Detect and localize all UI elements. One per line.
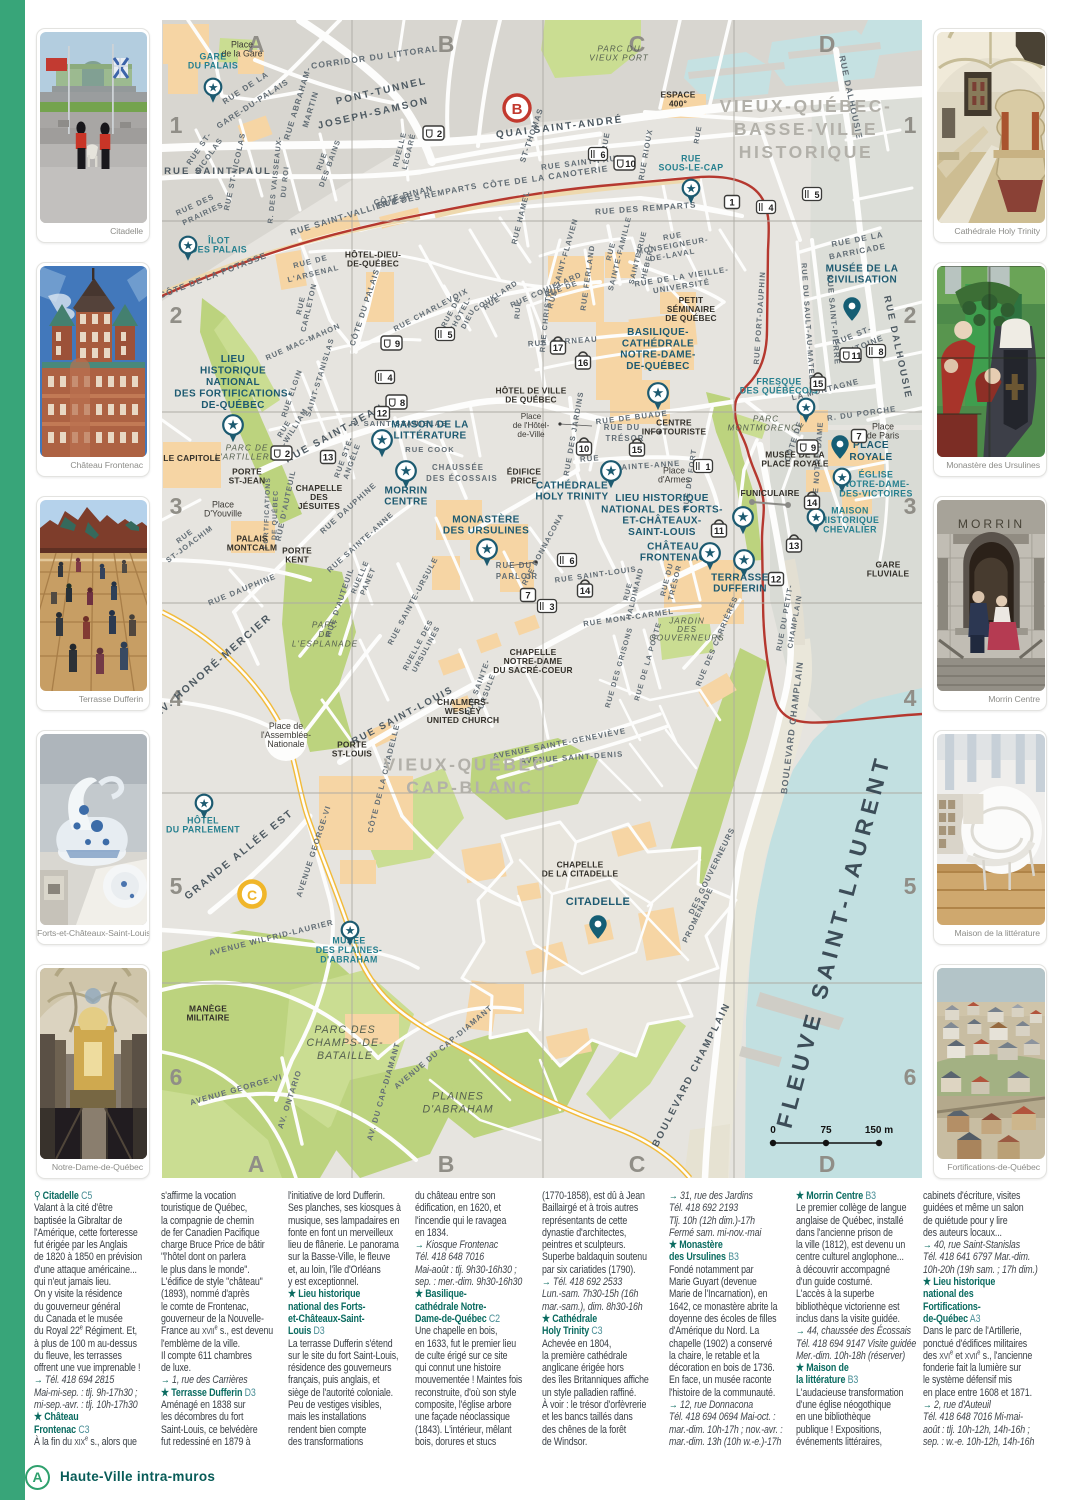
svg-text:DES URSULINES: DES URSULINES <box>443 526 529 537</box>
svg-text:KENT: KENT <box>285 555 309 565</box>
svg-text:MUSÉE DE LA: MUSÉE DE LA <box>826 262 899 275</box>
svg-text:MAISON DE LA: MAISON DE LA <box>391 419 469 430</box>
svg-text:9: 9 <box>811 443 816 454</box>
svg-text:5: 5 <box>814 190 819 200</box>
svg-text:D'Youville: D'Youville <box>204 509 242 519</box>
svg-text:DE: DE <box>318 630 331 639</box>
svg-text:CENTRE: CENTRE <box>384 497 428 508</box>
svg-text:★: ★ <box>208 81 219 94</box>
svg-text:1: 1 <box>170 112 183 138</box>
svg-text:UNITED CHURCH: UNITED CHURCH <box>427 715 499 725</box>
svg-text:15: 15 <box>632 445 643 456</box>
svg-text:NATIONAL: NATIONAL <box>206 377 260 388</box>
svg-text:RUE SAINT-PAUL: RUE SAINT-PAUL <box>164 166 272 177</box>
svg-text:PARC DU: PARC DU <box>597 45 640 54</box>
svg-text:★: ★ <box>811 511 822 524</box>
svg-text:★: ★ <box>652 384 664 400</box>
svg-text:PARC: PARC <box>753 415 779 424</box>
svg-text:ST-JEAN: ST-JEAN <box>229 476 266 486</box>
svg-text:★: ★ <box>737 508 749 524</box>
svg-text:BASILIQUE-: BASILIQUE- <box>627 327 689 338</box>
svg-text:6: 6 <box>904 1064 917 1090</box>
svg-text:LITTÉRATURE: LITTÉRATURE <box>393 429 466 442</box>
svg-text:17: 17 <box>553 343 564 354</box>
svg-text:DE LA CITADELLE: DE LA CITADELLE <box>542 869 619 879</box>
svg-text:CITADELLE: CITADELLE <box>566 896 631 908</box>
svg-text:2: 2 <box>285 449 290 460</box>
svg-text:FUNICULAIRE: FUNICULAIRE <box>741 488 800 498</box>
svg-text:RUE DU: RUE DU <box>604 423 641 432</box>
svg-text:ROYALE: ROYALE <box>849 452 892 463</box>
svg-text:CAP-BLANC: CAP-BLANC <box>406 778 533 798</box>
svg-text:4: 4 <box>387 373 392 383</box>
svg-text:★: ★ <box>801 401 812 414</box>
svg-text:DES PALAIS: DES PALAIS <box>191 245 247 255</box>
svg-text:PLAINES: PLAINES <box>432 1091 484 1103</box>
svg-text:MONASTÈRE: MONASTÈRE <box>452 512 520 525</box>
svg-text:PARC DES: PARC DES <box>314 1024 375 1036</box>
svg-text:VIEUX-QUÉBEC-: VIEUX-QUÉBEC- <box>720 95 893 116</box>
svg-text:DE-QUÉBEC: DE-QUÉBEC <box>201 398 265 411</box>
svg-text:D'ABRAHAM: D'ABRAHAM <box>320 954 378 964</box>
svg-text:16: 16 <box>578 358 589 369</box>
svg-text:HISTORIQUE: HISTORIQUE <box>200 366 266 377</box>
svg-text:Nationale: Nationale <box>267 739 304 749</box>
svg-text:★: ★ <box>704 544 716 560</box>
svg-text:MORRIN: MORRIN <box>958 517 1025 531</box>
svg-text:de Paris: de Paris <box>867 431 900 441</box>
svg-text:15: 15 <box>813 379 824 390</box>
svg-text:400°: 400° <box>669 99 687 109</box>
svg-text:TERRASSE: TERRASSE <box>711 572 769 583</box>
svg-text:C: C <box>247 887 257 903</box>
svg-text:9: 9 <box>395 339 400 350</box>
svg-text:3: 3 <box>170 493 183 519</box>
svg-text:5: 5 <box>904 873 917 899</box>
svg-text:★: ★ <box>183 239 194 252</box>
svg-text:★: ★ <box>227 416 239 432</box>
svg-text:CATHÉDRALE: CATHÉDRALE <box>622 336 694 349</box>
svg-text:MONTMORENCY: MONTMORENCY <box>728 424 805 433</box>
svg-text:NOTRE-DAME-: NOTRE-DAME- <box>620 350 696 361</box>
svg-text:de la Gare: de la Gare <box>221 49 262 59</box>
svg-text:DES QUÉBÉCOIS: DES QUÉBÉCOIS <box>740 386 819 396</box>
svg-text:de-Ville: de-Ville <box>517 430 545 439</box>
svg-text:10: 10 <box>579 444 590 455</box>
svg-text:11: 11 <box>851 351 862 362</box>
svg-text:DE QUÉBEC: DE QUÉBEC <box>505 394 557 405</box>
svg-text:DES FORTIFICATIONS-: DES FORTIFICATIONS- <box>174 388 291 399</box>
svg-text:B: B <box>438 31 455 57</box>
svg-text:★: ★ <box>837 471 848 484</box>
svg-text:d'Armes: d'Armes <box>658 475 691 485</box>
svg-text:ET-CHÂTEAUX-: ET-CHÂTEAUX- <box>622 514 701 527</box>
svg-text:CHAUSSÉE: CHAUSSÉE <box>432 463 484 472</box>
svg-text:1: 1 <box>729 198 735 209</box>
svg-text:5: 5 <box>170 873 183 899</box>
svg-text:LE CAPITOLE: LE CAPITOLE <box>163 453 221 463</box>
svg-text:SOUS-LE-CAP: SOUS-LE-CAP <box>658 163 723 173</box>
svg-text:LIEU HISTORIQUE: LIEU HISTORIQUE <box>615 493 709 504</box>
svg-text:2: 2 <box>437 129 442 140</box>
svg-text:8: 8 <box>878 347 883 357</box>
svg-text:11: 11 <box>714 526 725 537</box>
svg-text:DES ÉCOSSAIS: DES ÉCOSSAIS <box>426 474 498 483</box>
svg-text:GOUVERNEURS: GOUVERNEURS <box>649 634 724 643</box>
svg-text:FRONTENAC: FRONTENAC <box>640 553 706 564</box>
svg-text:C: C <box>629 1151 646 1177</box>
svg-text:ST-LOUIS: ST-LOUIS <box>332 749 372 759</box>
svg-text:PARC: PARC <box>312 621 338 630</box>
svg-text:13: 13 <box>323 453 334 464</box>
svg-text:★: ★ <box>738 551 750 567</box>
svg-text:12: 12 <box>771 575 782 586</box>
svg-text:HOLY TRINITY: HOLY TRINITY <box>535 492 608 503</box>
svg-text:NATIONAL DES FORTS-: NATIONAL DES FORTS- <box>601 504 723 515</box>
svg-text:★: ★ <box>605 462 617 478</box>
svg-text:DU PALAIS: DU PALAIS <box>188 61 238 71</box>
svg-text:6: 6 <box>170 1064 183 1090</box>
svg-text:1: 1 <box>904 112 917 138</box>
svg-text:RUE: RUE <box>512 300 523 319</box>
svg-text:de l'Hôtel-: de l'Hôtel- <box>513 421 550 430</box>
svg-text:MILITAIRE: MILITAIRE <box>186 1013 229 1023</box>
svg-text:CHAMPS-DE-: CHAMPS-DE- <box>306 1037 383 1049</box>
svg-text:0: 0 <box>770 1125 776 1136</box>
svg-text:A: A <box>248 1151 265 1177</box>
svg-text:14: 14 <box>807 498 818 509</box>
svg-text:5: 5 <box>447 330 452 340</box>
svg-text:L'ESPLANADE: L'ESPLANADE <box>292 639 358 648</box>
svg-text:2: 2 <box>904 302 917 328</box>
svg-text:CIVILISATION: CIVILISATION <box>827 275 897 286</box>
svg-text:CHÂTEAU: CHÂTEAU <box>647 539 699 552</box>
svg-text:★: ★ <box>481 540 493 556</box>
svg-text:DE-QUÉBEC: DE-QUÉBEC <box>347 258 399 269</box>
svg-text:7: 7 <box>856 432 861 443</box>
svg-text:1: 1 <box>705 462 710 472</box>
svg-text:PRICE: PRICE <box>511 476 538 486</box>
svg-text:D: D <box>819 31 836 57</box>
svg-text:CATHÉDRALE: CATHÉDRALE <box>536 478 608 491</box>
svg-text:4: 4 <box>768 203 773 213</box>
svg-text:8: 8 <box>400 398 405 409</box>
svg-text:DUFFERIN: DUFFERIN <box>713 584 767 595</box>
svg-text:150 m: 150 m <box>865 1125 893 1136</box>
svg-text:B: B <box>512 101 523 118</box>
svg-text:SAINT-LOUIS: SAINT-LOUIS <box>628 527 696 538</box>
svg-text:VIEUX PORT: VIEUX PORT <box>589 54 648 63</box>
svg-text:PLACE ROYALE: PLACE ROYALE <box>761 459 828 469</box>
svg-text:Place: Place <box>521 412 542 421</box>
svg-text:★: ★ <box>400 462 412 478</box>
svg-text:BATAILLE: BATAILLE <box>317 1050 373 1062</box>
svg-text:TRÉSOR: TRÉSOR <box>605 434 644 443</box>
svg-text:7: 7 <box>525 591 530 602</box>
svg-text:4: 4 <box>904 685 917 711</box>
svg-text:13: 13 <box>789 541 800 552</box>
svg-text:CHEVALIER: CHEVALIER <box>823 524 877 534</box>
svg-text:FLUVIALE: FLUVIALE <box>867 569 910 579</box>
svg-text:JÉSUITES: JÉSUITES <box>298 500 340 511</box>
svg-text:HISTORIQUE: HISTORIQUE <box>739 142 874 162</box>
svg-text:6: 6 <box>600 150 605 160</box>
svg-text:DE QUÉBEC: DE QUÉBEC <box>665 312 717 323</box>
svg-text:VIEUX-QUÉBEC-: VIEUX-QUÉBEC- <box>384 754 557 775</box>
svg-text:BASSE-VILLE: BASSE-VILLE <box>734 119 878 139</box>
svg-text:LIEU: LIEU <box>221 354 245 365</box>
svg-text:DE-QUÉBEC: DE-QUÉBEC <box>626 359 690 372</box>
svg-text:PARLOIR: PARLOIR <box>496 572 538 581</box>
svg-text:ÎLOT: ÎLOT <box>207 234 230 245</box>
svg-text:RUE COOK: RUE COOK <box>405 445 455 454</box>
svg-text:MONTCALM: MONTCALM <box>227 543 277 553</box>
svg-text:★: ★ <box>686 182 697 195</box>
svg-text:★: ★ <box>199 797 210 810</box>
svg-text:D: D <box>819 1151 836 1177</box>
svg-text:14: 14 <box>580 586 591 597</box>
svg-text:DU PARLEMENT: DU PARLEMENT <box>166 825 240 835</box>
svg-text:DES-VICTOIRES: DES-VICTOIRES <box>839 488 912 498</box>
svg-text:L'ARTILLERIE: L'ARTILLERIE <box>215 453 280 462</box>
svg-text:DU SACRÉ-COEUR: DU SACRÉ-COEUR <box>493 664 573 675</box>
svg-text:PARC DE: PARC DE <box>226 444 269 453</box>
svg-text:B: B <box>438 1151 455 1177</box>
svg-text:D'ABRAHAM: D'ABRAHAM <box>422 1104 493 1116</box>
svg-text:2: 2 <box>170 302 183 328</box>
svg-text:75: 75 <box>820 1125 832 1136</box>
svg-text:★: ★ <box>345 924 356 937</box>
svg-text:10: 10 <box>625 159 636 170</box>
svg-text:6: 6 <box>569 556 574 566</box>
svg-text:12: 12 <box>377 409 388 420</box>
svg-text:3: 3 <box>549 602 554 612</box>
svg-text:★: ★ <box>376 431 388 447</box>
